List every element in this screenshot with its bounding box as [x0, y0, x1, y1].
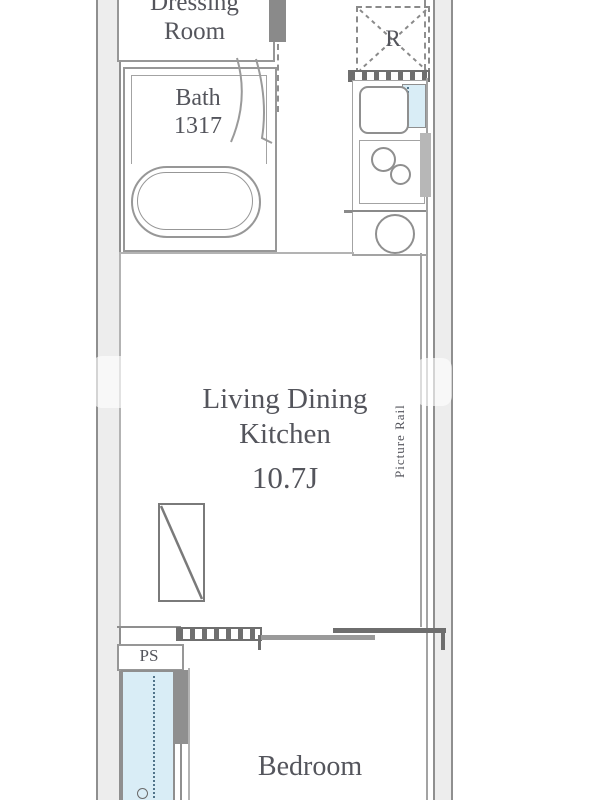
stove-burner-small	[390, 164, 411, 185]
ldk-size: 10.7J	[160, 460, 410, 495]
bathtub-inner	[137, 172, 253, 230]
bedroom-left-inner-line	[188, 668, 190, 800]
sliding-door-panel-a	[258, 635, 375, 640]
ldk-label-line1: Living Dining	[160, 382, 410, 417]
ldk-label-line2: Kitchen	[160, 417, 410, 452]
ldk-top-inner-line	[119, 252, 354, 254]
storage-unit	[158, 503, 205, 602]
watermark-right	[416, 358, 452, 406]
bath-label: Bath 1317	[133, 84, 263, 140]
sliding-door-panel-a-tick	[258, 635, 261, 650]
sliding-door-panel-b-tick	[441, 628, 445, 650]
right-wall-chunk	[420, 133, 431, 197]
storage-diagonal-line	[160, 505, 203, 600]
fridge-space: R	[356, 6, 430, 74]
round-fixture	[375, 214, 415, 254]
ldk-bottom-wall-line	[117, 626, 181, 628]
picture-rail-label: Picture Rail	[392, 388, 414, 494]
ldk-label: Living Dining Kitchen 10.7J	[160, 382, 410, 495]
window-glyph	[137, 788, 148, 799]
bedroom-label: Bedroom	[200, 751, 420, 783]
bath-name: Bath	[133, 84, 263, 112]
accordion-door	[176, 627, 262, 641]
window-side-wall	[173, 670, 188, 744]
picture-rail-line-1	[420, 253, 422, 627]
watermark-left	[92, 356, 146, 408]
bedroom-door-leaf-line	[180, 744, 182, 800]
floor-plan: Dressing Room Bath 1317 R Living Di	[0, 0, 600, 800]
fridge-label: R	[358, 26, 428, 52]
bath-size: 1317	[133, 112, 263, 140]
ps-label: PS	[117, 646, 181, 666]
ldk-left-inner-line	[119, 252, 121, 628]
sliding-door-panel-b	[333, 628, 446, 633]
window-glass-dotted-line	[153, 676, 155, 800]
kitchen-sink	[359, 86, 409, 134]
window-glass-strip	[121, 670, 175, 800]
fridge-side-dashed-line	[424, 0, 426, 70]
